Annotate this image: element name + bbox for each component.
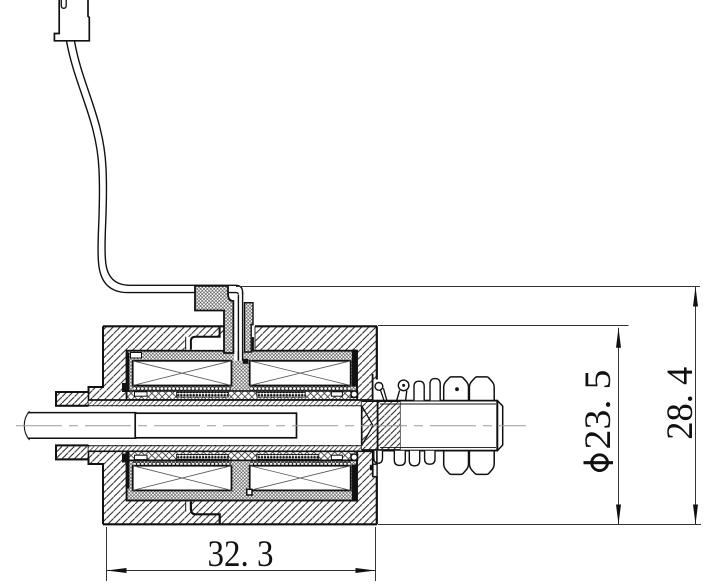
- svg-text:28. 4: 28. 4: [660, 367, 701, 440]
- svg-text:23. 5: 23. 5: [578, 370, 619, 450]
- svg-text:32. 3: 32. 3: [208, 534, 274, 575]
